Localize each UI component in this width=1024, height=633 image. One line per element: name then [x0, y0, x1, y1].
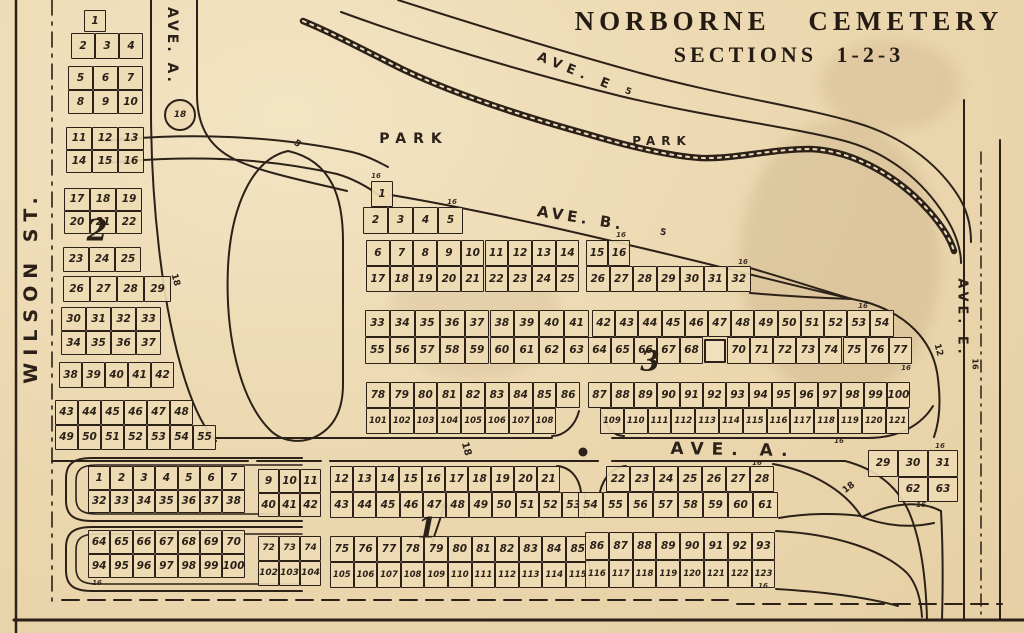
- sec3-band1-left-plot-8: 8: [413, 240, 437, 266]
- sec1-right-row-54-61-plot-60: 60: [728, 492, 753, 518]
- lot-width-tick: 16: [738, 258, 748, 266]
- sec3-band1-left-plot-23: 23: [508, 266, 532, 292]
- sec3-band3-right-bot-plot-121: 121: [886, 408, 910, 434]
- sec3-band2-left-plot-55: 55: [365, 337, 390, 364]
- ave-e-right-width: 16: [971, 358, 980, 369]
- sec3-band2-left-plot-41: 41: [564, 310, 589, 337]
- sec3-band3-right-top-plot-90: 90: [657, 382, 680, 408]
- sec1-mid-row-75-85-plot-83: 83: [519, 536, 543, 562]
- sec3-band2-left-plot-63: 63: [564, 337, 589, 364]
- sec2-block-k-plot-50: 50: [78, 425, 101, 450]
- sec1-west-block1-plot-4: 4: [155, 466, 177, 490]
- sec2-block-h-plot-31: 31: [86, 307, 111, 331]
- lot-width-tick: 16: [447, 198, 457, 206]
- sec2-block-g-plot-27: 27: [90, 276, 117, 302]
- lot-width-tick: 16: [858, 302, 868, 310]
- se-wedge-tail: [941, 511, 943, 620]
- sec3-band2-right-bot-b-plot-77: 77: [889, 337, 912, 364]
- sec2-block-d-plot-12: 12: [92, 127, 118, 150]
- roundabout-dot: [579, 448, 588, 457]
- sec3-band1-left-plot-12: 12: [508, 240, 532, 266]
- sec1-right-row-54-61-plot-56: 56: [628, 492, 653, 518]
- sec1-right-row-116-123-plot-117: 117: [609, 560, 633, 588]
- sec3-band2-left-plot-33: 33: [365, 310, 390, 337]
- sec1-right-row-54-61-plot-57: 57: [653, 492, 678, 518]
- sec3-band1-left-plot-19: 19: [413, 266, 437, 292]
- sec2-block-e-plot-19: 19: [116, 188, 142, 211]
- sec1-right-row-22-28-plot-22: 22: [606, 466, 630, 492]
- sec1-right-row-86-93-plot-92: 92: [728, 532, 752, 560]
- sec1-mid-row-105-115-plot-110: 110: [448, 562, 472, 588]
- sec1-mid-block2-plot-73: 73: [279, 536, 300, 561]
- se-wedge-upper: [862, 504, 941, 517]
- sec1-mid-block1-plot-10: 10: [279, 469, 300, 493]
- sec1-mid-row-12-21-plot-21: 21: [537, 466, 560, 492]
- sec1-right-row-116-123-plot-116: 116: [585, 560, 609, 588]
- sec2-block-h-plot-32: 32: [111, 307, 136, 331]
- sec1-mid-row-43-53-plot-44: 44: [353, 492, 376, 518]
- sec3-band3-left-top-plot-80: 80: [414, 382, 438, 408]
- roundabout-notch-sw: [557, 466, 581, 492]
- sec3-band2-left-plot-37: 37: [465, 310, 490, 337]
- sec3-band1-left-plot-20: 20: [437, 266, 461, 292]
- sec3-band2-left-plot-40: 40: [539, 310, 564, 337]
- sec3-band2-right-top-plot-53: 53: [847, 310, 870, 337]
- sec3-band2-left-plot-56: 56: [390, 337, 415, 364]
- sec1-mid-block1-plot-9: 9: [258, 469, 279, 493]
- lot-width-tick: 16: [834, 437, 844, 445]
- sec1-mid-row-105-115-plot-109: 109: [424, 562, 448, 588]
- sec1-right-row-116-123-plot-121: 121: [704, 560, 728, 588]
- cemetery-map: NORBORNE CEMETERY SECTIONS 1-2-3 18 1234…: [0, 0, 1024, 633]
- sec2-block-c-plot-8: 8: [68, 90, 93, 114]
- sec2-block-j-plot-47: 47: [147, 400, 170, 425]
- sec1-west-block1-plot-1: 1: [88, 466, 110, 490]
- sec3-band3-right-top-plot-99: 99: [864, 382, 887, 408]
- sec1-mid-row-105-115-plot-106: 106: [354, 562, 378, 588]
- sec3-band2-right-top-plot-44: 44: [638, 310, 661, 337]
- lot-width-tick: 16: [92, 579, 102, 587]
- sec1-mid-row-43-53-plot-51: 51: [516, 492, 539, 518]
- sec1-west-block2-plot-95: 95: [110, 554, 132, 578]
- sec1-west-block1-plot-34: 34: [133, 490, 155, 514]
- sec1-mid-row-105-115-plot-105: 105: [330, 562, 354, 588]
- sec3-band1-left-plot-10: 10: [461, 240, 485, 266]
- lot-width-tick: 16: [752, 459, 762, 467]
- sec3-band1-right-bot-plot-27: 27: [610, 266, 634, 292]
- sec2-block-g-plot-28: 28: [117, 276, 144, 302]
- sec2-block-c-plot-5: 5: [68, 66, 93, 90]
- sec3-band3-right-bot-plot-120: 120: [862, 408, 886, 434]
- section-1-numeral: 1: [417, 512, 436, 545]
- sec1-mid-row-12-21-plot-14: 14: [376, 466, 399, 492]
- sec1-west-block2-plot-70: 70: [222, 530, 244, 554]
- sec3-band3-right-bot-plot-119: 119: [838, 408, 862, 434]
- sec1-mid-row-105-115-plot-107: 107: [377, 562, 401, 588]
- section-3-numeral: 3: [640, 345, 659, 378]
- sec2-block-i-plot-41: 41: [128, 362, 151, 388]
- sec3-band3-right-bot-plot-114: 114: [719, 408, 743, 434]
- sec2-block-c-plot-10: 10: [118, 90, 143, 114]
- sec3-band1-left-plot-13: 13: [532, 240, 556, 266]
- sec3-band1-left-plot-25: 25: [556, 266, 580, 292]
- sec3-band2-right-top-plot-45: 45: [662, 310, 685, 337]
- sec1-west-block2-plot-94: 94: [88, 554, 110, 578]
- sec3-band2-right-top-plot-42: 42: [592, 310, 615, 337]
- sec1-triangle-top-plot-31: 31: [928, 450, 958, 477]
- sec3-band3-left-top-plot-78: 78: [366, 382, 390, 408]
- sec3-lot-1-plot-1: 1: [371, 181, 393, 207]
- sec2-block-f-plot-24: 24: [89, 247, 115, 272]
- sec1-right-row-22-28-plot-27: 27: [726, 466, 750, 492]
- sec3-band3-right-bot-plot-109: 109: [600, 408, 624, 434]
- sec1-west-block2-plot-68: 68: [178, 530, 200, 554]
- sec1-west-block1-plot-38: 38: [222, 490, 244, 514]
- sec1-mid-block2-plot-74: 74: [300, 536, 321, 561]
- sec3-band1-right-bot-plot-28: 28: [633, 266, 657, 292]
- sec3-band3-left-bot-plot-107: 107: [509, 408, 533, 434]
- sec1-west-block2-plot-65: 65: [110, 530, 132, 554]
- sec2-block-d-plot-16: 16: [118, 150, 144, 173]
- lot-width-tick: 16: [371, 172, 381, 180]
- lot-width-tick: 16: [616, 231, 626, 239]
- sec3-band3-right-top-plot-93: 93: [726, 382, 749, 408]
- sec2-block-a-plot-1: 1: [84, 10, 106, 32]
- sec1-right-row-86-93-plot-88: 88: [633, 532, 657, 560]
- sec3-band2-left-plot-38: 38: [490, 310, 515, 337]
- sec1-west-block1-plot-6: 6: [200, 466, 222, 490]
- sec3-band2-left-plot-34: 34: [390, 310, 415, 337]
- sec1-west-block2-plot-100: 100: [222, 554, 244, 578]
- sec2-block-d-plot-13: 13: [118, 127, 144, 150]
- sec3-band2-right-bot-b-plot-75: 75: [843, 337, 866, 364]
- sec2-block-f-plot-25: 25: [115, 247, 141, 272]
- sec1-mid-block1-plot-41: 41: [279, 493, 300, 517]
- sec1-west-block2-plot-98: 98: [178, 554, 200, 578]
- sec1-right-row-22-28-plot-26: 26: [702, 466, 726, 492]
- sec3-band1-left-plot-7: 7: [390, 240, 414, 266]
- sec2-block-c-plot-6: 6: [93, 66, 118, 90]
- sec3-band1-left-plot-14: 14: [556, 240, 580, 266]
- sec1-mid-row-105-115-plot-111: 111: [472, 562, 496, 588]
- sec3-band2-left-plot-61: 61: [514, 337, 539, 364]
- sec3-band2-left-plot-36: 36: [440, 310, 465, 337]
- sec3-band2-right-top-plot-54: 54: [870, 310, 893, 337]
- sec1-mid-row-12-21-plot-18: 18: [468, 466, 491, 492]
- sec2-block-d-plot-11: 11: [66, 127, 92, 150]
- sec3-band3-right-top-plot-97: 97: [818, 382, 841, 408]
- sec1-west-block1-plot-3: 3: [133, 466, 155, 490]
- sec3-band3-left-top-plot-84: 84: [509, 382, 533, 408]
- sec1-west-block2-plot-67: 67: [155, 530, 177, 554]
- sec3-band2-right-bot-b-plot-73: 73: [796, 337, 819, 364]
- sec1-right-row-22-28-plot-25: 25: [678, 466, 702, 492]
- sec1-mid-row-75-85-plot-80: 80: [448, 536, 472, 562]
- sec3-band3-right-bot-plot-118: 118: [814, 408, 838, 434]
- sec3-band1-left-plot-21: 21: [461, 266, 485, 292]
- park-east-label: PARK: [632, 134, 692, 148]
- sec1-triangle-bot-plot-63: 63: [928, 477, 958, 502]
- sec1-west-block2-plot-66: 66: [133, 530, 155, 554]
- sec3-band3-left-bot-plot-108: 108: [533, 408, 557, 434]
- sec1-mid-block2-plot-103: 103: [279, 561, 300, 586]
- sec3-band2-left-plot-58: 58: [440, 337, 465, 364]
- sec1-triangle-bot-plot-62: 62: [898, 477, 928, 502]
- park-road-upper: [104, 136, 388, 167]
- sec3-band2-right-bot-a-plot-68: 68: [680, 337, 703, 364]
- sec3-band3-left-bot-plot-106: 106: [485, 408, 509, 434]
- sec2-block-h-plot-36: 36: [111, 331, 136, 355]
- sec1-mid-row-12-21-plot-17: 17: [445, 466, 468, 492]
- sec2-block-k-plot-53: 53: [147, 425, 170, 450]
- map-title-line2: SECTIONS 1-2-3: [566, 42, 1012, 68]
- sec1-triangle-top-plot-30: 30: [898, 450, 928, 477]
- sec2-block-d-plot-15: 15: [92, 150, 118, 173]
- sec1-right-row-86-93-plot-90: 90: [680, 532, 704, 560]
- sec1-mid-row-12-21-plot-13: 13: [353, 466, 376, 492]
- sec1-west-block1-plot-32: 32: [88, 490, 110, 514]
- sec1-right-row-22-28-plot-28: 28: [750, 466, 774, 492]
- lot-width-tick: 16: [758, 582, 768, 590]
- sec1-mid-row-75-85-plot-81: 81: [472, 536, 496, 562]
- sec1-mid-row-12-21-plot-20: 20: [514, 466, 537, 492]
- sec1-mid-block1-plot-40: 40: [258, 493, 279, 517]
- sec2-block-i-plot-39: 39: [82, 362, 105, 388]
- sec3-band1-left-plot-24: 24: [532, 266, 556, 292]
- sec1-right-row-22-28-plot-24: 24: [654, 466, 678, 492]
- sec3-band2-left-plot-59: 59: [465, 337, 490, 364]
- sec3-band1-left-plot-11: 11: [485, 240, 509, 266]
- sec3-band2-right-top-plot-52: 52: [824, 310, 847, 337]
- sec3-band3-left-top-plot-83: 83: [485, 382, 509, 408]
- sec2-block-c-plot-9: 9: [93, 90, 118, 114]
- sec3-band2-right-bot-b-plot-70: 70: [727, 337, 750, 364]
- ave-a-main-label: AVE. A.: [670, 439, 795, 461]
- sec3-band1-left-plot-9: 9: [437, 240, 461, 266]
- section-2-numeral: 2: [87, 214, 108, 249]
- sec1-west-block1-plot-2: 2: [110, 466, 132, 490]
- sec1-mid-row-105-115-plot-108: 108: [401, 562, 425, 588]
- sec2-block-k-plot-51: 51: [101, 425, 124, 450]
- sec3-band3-left-top-plot-81: 81: [437, 382, 461, 408]
- sec3-band3-right-bot-plot-117: 117: [790, 408, 814, 434]
- sec3-band3-right-top-plot-94: 94: [749, 382, 772, 408]
- sec1-right-cap-lower: [779, 514, 861, 518]
- sec3-band2-right-top-plot-50: 50: [778, 310, 801, 337]
- sec2-block-h-plot-33: 33: [136, 307, 161, 331]
- sec3-band3-right-top-plot-95: 95: [772, 382, 795, 408]
- sec2-block-i-plot-38: 38: [59, 362, 82, 388]
- sec1-mid-row-12-21-plot-19: 19: [491, 466, 514, 492]
- sec2-block-i-plot-40: 40: [105, 362, 128, 388]
- sec2-block-j-plot-43: 43: [55, 400, 78, 425]
- sec3-band3-left-bot-plot-104: 104: [437, 408, 461, 434]
- sec3-band3-right-top-plot-87: 87: [588, 382, 611, 408]
- sec3-band3-right-bot-plot-112: 112: [671, 408, 695, 434]
- sec1-west-block1-plot-33: 33: [110, 490, 132, 514]
- sec1-right-row-54-61-plot-59: 59: [703, 492, 728, 518]
- sec3-band3-left-top-plot-86: 86: [556, 382, 580, 408]
- sec3-band2-right-bot-b-plot-74: 74: [819, 337, 842, 364]
- sec3-band3-left-top-plot-85: 85: [533, 382, 557, 408]
- sec2-block-i-plot-42: 42: [151, 362, 174, 388]
- sec3-band3-right-bot-plot-113: 113: [695, 408, 719, 434]
- sec3-band1-right-bot-plot-26: 26: [586, 266, 610, 292]
- sec3-band2-right-top-plot-51: 51: [801, 310, 824, 337]
- sec1-mid-block1-plot-42: 42: [300, 493, 321, 517]
- sec3-band2-left-plot-62: 62: [539, 337, 564, 364]
- sec1-right-row-54-61-plot-55: 55: [603, 492, 628, 518]
- sec1-mid-row-12-21-plot-15: 15: [399, 466, 422, 492]
- sec3-band1-right-bot-plot-30: 30: [680, 266, 704, 292]
- sec3-band3-left-top-plot-82: 82: [461, 382, 485, 408]
- sec1-west-block2-plot-69: 69: [200, 530, 222, 554]
- sec3-structure-cell: [704, 339, 726, 363]
- ave-e-right-label: AVE. E.: [955, 278, 970, 357]
- sec1-right-row-54-61-plot-61: 61: [753, 492, 778, 518]
- sec1-mid-row-43-53-plot-49: 49: [469, 492, 492, 518]
- sec3-row-2-5-plot-3: 3: [388, 207, 413, 234]
- sec3-band1-left-plot-17: 17: [366, 266, 390, 292]
- sec3-band2-left-plot-57: 57: [415, 337, 440, 364]
- sec2-block-e-plot-18: 18: [90, 188, 116, 211]
- sec2-block-g-plot-26: 26: [63, 276, 90, 302]
- sec1-mid-row-75-85-plot-77: 77: [377, 536, 401, 562]
- sec1-right-row-116-123-plot-119: 119: [656, 560, 680, 588]
- sec2-block-k-plot-54: 54: [170, 425, 193, 450]
- sec3-band3-right-bot-plot-116: 116: [767, 408, 791, 434]
- sec3-band3-left-bot-plot-102: 102: [390, 408, 414, 434]
- sec3-row-2-5-plot-2: 2: [363, 207, 388, 234]
- sec3-band2-right-bot-b-plot-76: 76: [866, 337, 889, 364]
- sec1-right-row-86-93-plot-91: 91: [704, 532, 728, 560]
- sec3-band3-right-top-plot-91: 91: [680, 382, 703, 408]
- park-west-label: PARK: [379, 131, 448, 147]
- sec3-band3-right-top-plot-98: 98: [841, 382, 864, 408]
- sec2-block-h-plot-30: 30: [61, 307, 86, 331]
- sec3-band2-right-bot-a-plot-67: 67: [657, 337, 680, 364]
- sec2-block-e-plot-17: 17: [64, 188, 90, 211]
- sec1-right-row-54-61-plot-58: 58: [678, 492, 703, 518]
- sec2-block-h-plot-34: 34: [61, 331, 86, 355]
- sec3-band2-left-plot-35: 35: [415, 310, 440, 337]
- sec1-mid-block1-plot-11: 11: [300, 469, 321, 493]
- sec1-mid-row-12-21-plot-16: 16: [422, 466, 445, 492]
- sec1-right-row-86-93-plot-87: 87: [609, 532, 633, 560]
- sec3-band2-right-top-plot-47: 47: [708, 310, 731, 337]
- sec1-west-block1-plot-36: 36: [178, 490, 200, 514]
- sec1-right-row-86-93-plot-89: 89: [656, 532, 680, 560]
- sec3-band1-right-bot-plot-32: 32: [727, 266, 751, 292]
- sec1-right-row-116-123-plot-122: 122: [728, 560, 752, 588]
- sec3-band2-right-bot-a-plot-65: 65: [611, 337, 634, 364]
- sec1-triangle-top-plot-29: 29: [868, 450, 898, 477]
- sec2-block-g-plot-29: 29: [144, 276, 171, 302]
- sec3-row-2-5-plot-4: 4: [413, 207, 438, 234]
- sec1-west-block1-plot-35: 35: [155, 490, 177, 514]
- sec3-band3-right-bot-plot-115: 115: [743, 408, 767, 434]
- sec3-band2-right-top-plot-49: 49: [754, 310, 777, 337]
- sec3-band3-left-top-plot-79: 79: [390, 382, 414, 408]
- sec1-mid-row-75-85-plot-84: 84: [542, 536, 566, 562]
- sec1-mid-row-75-85-plot-76: 76: [354, 536, 378, 562]
- sec3-band3-right-top-plot-92: 92: [703, 382, 726, 408]
- sec3-band3-right-bot-plot-111: 111: [648, 408, 672, 434]
- se-wedge-lower: [862, 517, 934, 526]
- sec3-band2-left-plot-60: 60: [490, 337, 515, 364]
- sec3-band1-left-plot-18: 18: [390, 266, 414, 292]
- sec3-band3-left-bot-plot-105: 105: [461, 408, 485, 434]
- sec1-mid-row-12-21-plot-12: 12: [330, 466, 353, 492]
- sec3-band3-left-bot-plot-103: 103: [414, 408, 438, 434]
- sec1-west-block1-plot-5: 5: [178, 466, 200, 490]
- sec3-band2-right-top-plot-46: 46: [685, 310, 708, 337]
- sec3-band2-left-plot-39: 39: [514, 310, 539, 337]
- sec1-right-row-116-123-plot-120: 120: [680, 560, 704, 588]
- sec1-mid-row-105-115-plot-114: 114: [542, 562, 566, 588]
- sec1-right-row-22-28-plot-23: 23: [630, 466, 654, 492]
- sec3-band1-right-bot-plot-31: 31: [704, 266, 728, 292]
- park-oval-road: [228, 151, 343, 441]
- sec1-mid-row-43-53-plot-50: 50: [492, 492, 515, 518]
- map-title-line1: NORBORNE CEMETERY: [566, 6, 1012, 37]
- sec3-band3-right-top-plot-89: 89: [634, 382, 657, 408]
- sec3-band2-right-top-plot-43: 43: [615, 310, 638, 337]
- lot-width-tick: 16: [935, 442, 945, 450]
- sec1-west-block2-plot-64: 64: [88, 530, 110, 554]
- map-title: NORBORNE CEMETERY SECTIONS 1-2-3: [566, 6, 1012, 68]
- sec1-mid-row-43-53-plot-52: 52: [539, 492, 562, 518]
- sec1-west-block1-plot-37: 37: [200, 490, 222, 514]
- sec2-block-b-plot-4: 4: [119, 33, 143, 59]
- wilson-st-label: WILSON ST.: [20, 190, 42, 383]
- sec1-mid-block2-plot-72: 72: [258, 536, 279, 561]
- sec1-right-row-86-93-plot-86: 86: [585, 532, 609, 560]
- lot-width-tick: 16: [901, 364, 911, 372]
- sec1-west-block2-plot-96: 96: [133, 554, 155, 578]
- sec1-right-row-54-61-plot-54: 54: [578, 492, 603, 518]
- sec3-band3-right-top-plot-88: 88: [611, 382, 634, 408]
- sec3-band1-left-plot-22: 22: [485, 266, 509, 292]
- sec1-west-block1-plot-7: 7: [222, 466, 244, 490]
- sec3-band2-right-bot-b-plot-72: 72: [773, 337, 796, 364]
- sec1-west-block2-plot-97: 97: [155, 554, 177, 578]
- sec3-band1-right-top-plot-16: 16: [608, 240, 630, 266]
- sec2-block-k-plot-55: 55: [193, 425, 216, 450]
- sec1-mid-row-105-115-plot-113: 113: [519, 562, 543, 588]
- sec1-right-row-116-123-plot-118: 118: [633, 560, 657, 588]
- ave-a-north-label: AVE. A.: [164, 7, 180, 85]
- sec2-block-j-plot-45: 45: [101, 400, 124, 425]
- roundabout-notch-left: [552, 411, 579, 436]
- sec3-band1-right-bot-plot-29: 29: [657, 266, 681, 292]
- sec3-band2-right-top-plot-48: 48: [731, 310, 754, 337]
- sec1-west-block2-plot-99: 99: [200, 554, 222, 578]
- sec3-row-2-5-plot-5: 5: [438, 207, 463, 234]
- sec3-band2-right-bot-a-plot-64: 64: [588, 337, 611, 364]
- sec2-block-k-plot-52: 52: [124, 425, 147, 450]
- sec3-band3-right-top-plot-100: 100: [887, 382, 910, 408]
- sec2-block-h-plot-35: 35: [86, 331, 111, 355]
- sec1-mid-block2-plot-102: 102: [258, 561, 279, 586]
- sec1-mid-row-105-115-plot-112: 112: [495, 562, 519, 588]
- sec2-block-h-plot-37: 37: [136, 331, 161, 355]
- sec2-block-k-plot-49: 49: [55, 425, 78, 450]
- sec3-band3-left-bot-plot-101: 101: [366, 408, 390, 434]
- circle-18-marker: 18: [164, 99, 196, 131]
- sec3-band3-right-top-plot-96: 96: [795, 382, 818, 408]
- sec2-block-j-plot-46: 46: [124, 400, 147, 425]
